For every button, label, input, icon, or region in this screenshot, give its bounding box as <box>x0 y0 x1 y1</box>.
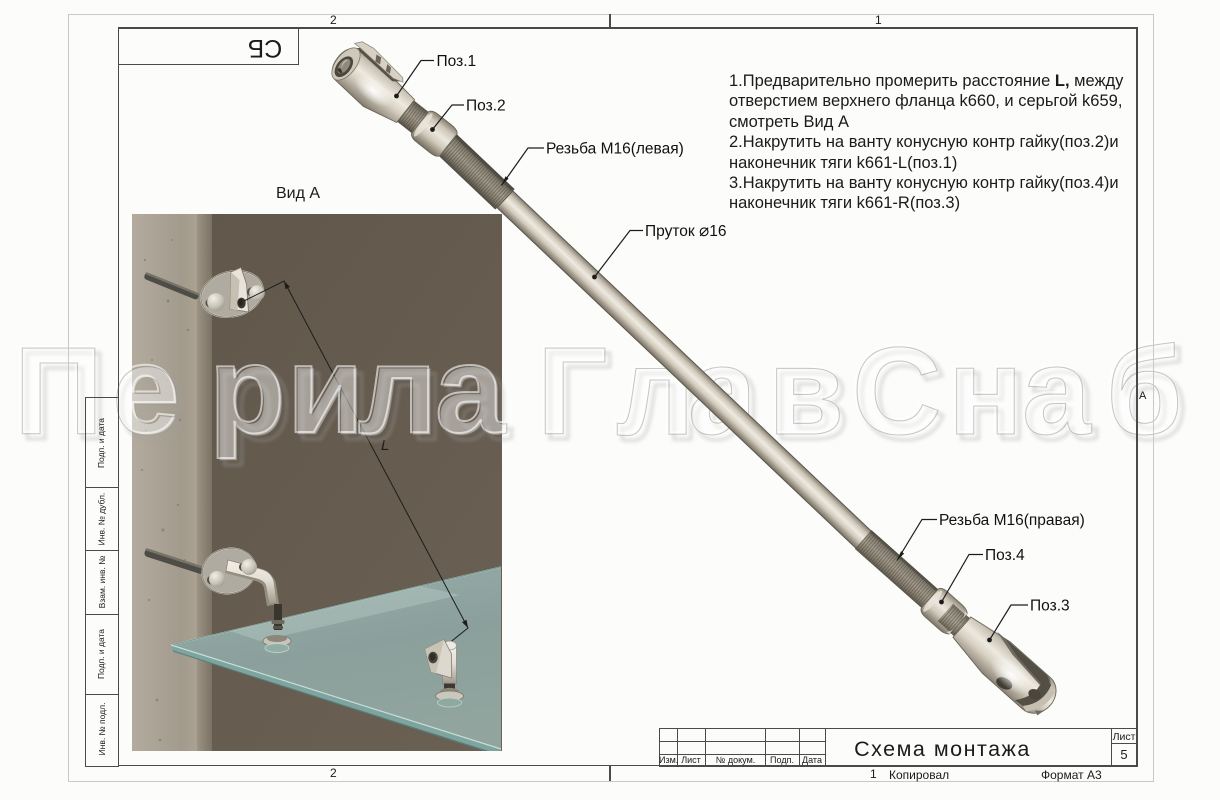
svg-text:Резьба М16(правая): Резьба М16(правая) <box>939 512 1085 529</box>
svg-text:Поз.4: Поз.4 <box>985 547 1025 564</box>
svg-text:Поз.1: Поз.1 <box>437 53 477 70</box>
svg-text:Поз.2: Поз.2 <box>466 98 506 115</box>
svg-text:Пруток ⌀16: Пруток ⌀16 <box>645 221 726 240</box>
svg-text:Поз.3: Поз.3 <box>1030 598 1070 615</box>
svg-text:Резьба М16(левая): Резьба М16(левая) <box>546 141 684 158</box>
